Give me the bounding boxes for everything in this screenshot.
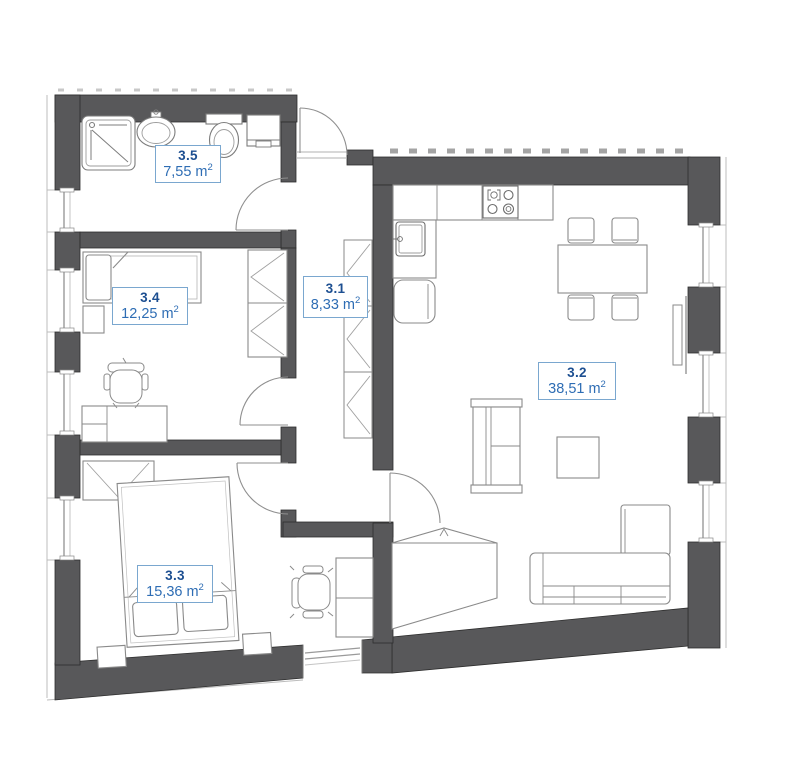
- wall-int-v1-b: [281, 230, 296, 248]
- wall-pier-east-1: [688, 287, 720, 353]
- room-id: 3.2: [567, 365, 587, 380]
- wall-top-right: [373, 157, 690, 185]
- fridge-icon: [394, 280, 435, 323]
- dining-chair: [568, 218, 594, 243]
- dining-chair: [612, 218, 638, 243]
- window-east-1: [699, 223, 713, 287]
- room-label-3-2: 3.2 38,51m2: [538, 362, 616, 400]
- wall-pier-west-3: [55, 332, 80, 372]
- room-area: 15,36m2: [146, 583, 204, 600]
- bathroom-door: [236, 178, 288, 230]
- wall-int-h1: [80, 232, 281, 248]
- kitchen-counter-top: [393, 185, 553, 220]
- dining-set: [558, 218, 647, 320]
- wall-pier-west-4: [55, 435, 80, 498]
- dining-chair: [568, 295, 594, 320]
- window-west-1: [60, 188, 74, 232]
- corner-sofa: [530, 505, 670, 604]
- bedroom-33-door: [237, 463, 288, 514]
- coffee-table: [557, 437, 599, 478]
- living-room-door: [390, 473, 440, 523]
- room-id: 3.1: [326, 281, 346, 296]
- pillow: [132, 600, 178, 637]
- room-label-3-4: 3.4 12,25m2: [112, 287, 188, 325]
- wall-entry-block: [347, 150, 373, 165]
- room-id: 3.3: [165, 568, 185, 583]
- stove-icon: [483, 186, 518, 218]
- wall-pier-west-5: [55, 560, 80, 665]
- wall-pier-se: [688, 542, 720, 648]
- room-area: 12,25m2: [121, 305, 179, 322]
- nightstand: [243, 632, 272, 655]
- room-label-3-1: 3.1 8,33m2: [303, 276, 368, 318]
- room-id: 3.5: [178, 148, 198, 163]
- wall-pier-ne: [688, 157, 720, 225]
- kitchen-area: [393, 185, 553, 323]
- wall-int-v1-d: [281, 427, 296, 463]
- window-east-3: [699, 481, 713, 542]
- window-west-4: [60, 496, 74, 560]
- office-chair-33: [290, 566, 333, 618]
- shower-icon: [82, 116, 135, 170]
- radiator: [673, 296, 686, 374]
- bath-cabinet-icon: [247, 115, 280, 147]
- room-label-3-3: 3.3 15,36m2: [137, 565, 213, 603]
- living-furniture: [392, 399, 670, 629]
- window-west-2: [60, 268, 74, 332]
- corner-wardrobe: [392, 528, 497, 629]
- dining-table: [558, 245, 647, 293]
- hallway-closets: [344, 240, 372, 438]
- dining-chair: [612, 295, 638, 320]
- nightstand: [83, 306, 104, 333]
- kitchen-counter-side: [393, 220, 436, 278]
- wall-int-v2-a: [373, 185, 393, 470]
- wall-pier-west-1: [55, 95, 80, 190]
- window-south: [303, 640, 362, 678]
- bedroom-34-door: [240, 377, 288, 425]
- wardrobe-34: [248, 250, 287, 357]
- window-east-2: [699, 351, 713, 417]
- entrance-door: [296, 108, 347, 158]
- room-id: 3.4: [140, 290, 160, 305]
- floor-plan-canvas: [0, 0, 789, 768]
- wall-pier-east-2: [688, 417, 720, 483]
- shelf-unit: [471, 399, 522, 493]
- office-chair-34: [104, 358, 148, 408]
- desk-33: [336, 558, 373, 637]
- desk-34: [82, 406, 167, 442]
- window-west-3: [60, 370, 74, 435]
- wall-int-v1-a: [281, 122, 296, 182]
- wall-pier-west-2: [55, 232, 80, 270]
- room-label-3-5: 3.5 7,55m2: [155, 145, 221, 183]
- bedroom-34-furniture: [82, 250, 287, 442]
- floor-plan: 3.5 7,55m2 3.4 12,25m2 3.1 8,33m2 3.2 38…: [0, 0, 789, 768]
- wall-int-v2-b: [373, 523, 393, 643]
- wall-bottom-right: [392, 608, 688, 673]
- room-area: 38,51m2: [548, 380, 606, 397]
- room-area: 7,55m2: [163, 163, 213, 180]
- nightstand: [97, 645, 126, 668]
- bedroom-33-furniture: [83, 461, 373, 668]
- room-area: 8,33m2: [311, 296, 361, 313]
